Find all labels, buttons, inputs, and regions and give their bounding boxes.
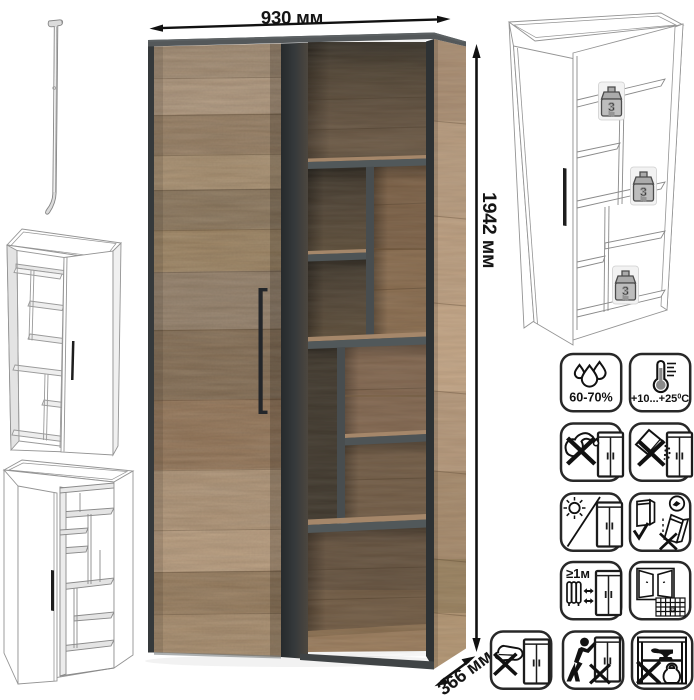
svg-text:kg: kg <box>641 197 647 203</box>
svg-text:21: 21 <box>670 607 675 612</box>
svg-text:+10...+250С: +10...+250С <box>631 393 689 405</box>
svg-text:1942 мм: 1942 мм <box>478 192 500 268</box>
svg-text:≥1м: ≥1м <box>566 566 590 581</box>
svg-text:kg: kg <box>623 296 629 302</box>
svg-text:kg: kg <box>609 112 615 118</box>
svg-text:60-70%: 60-70% <box>569 391 612 405</box>
